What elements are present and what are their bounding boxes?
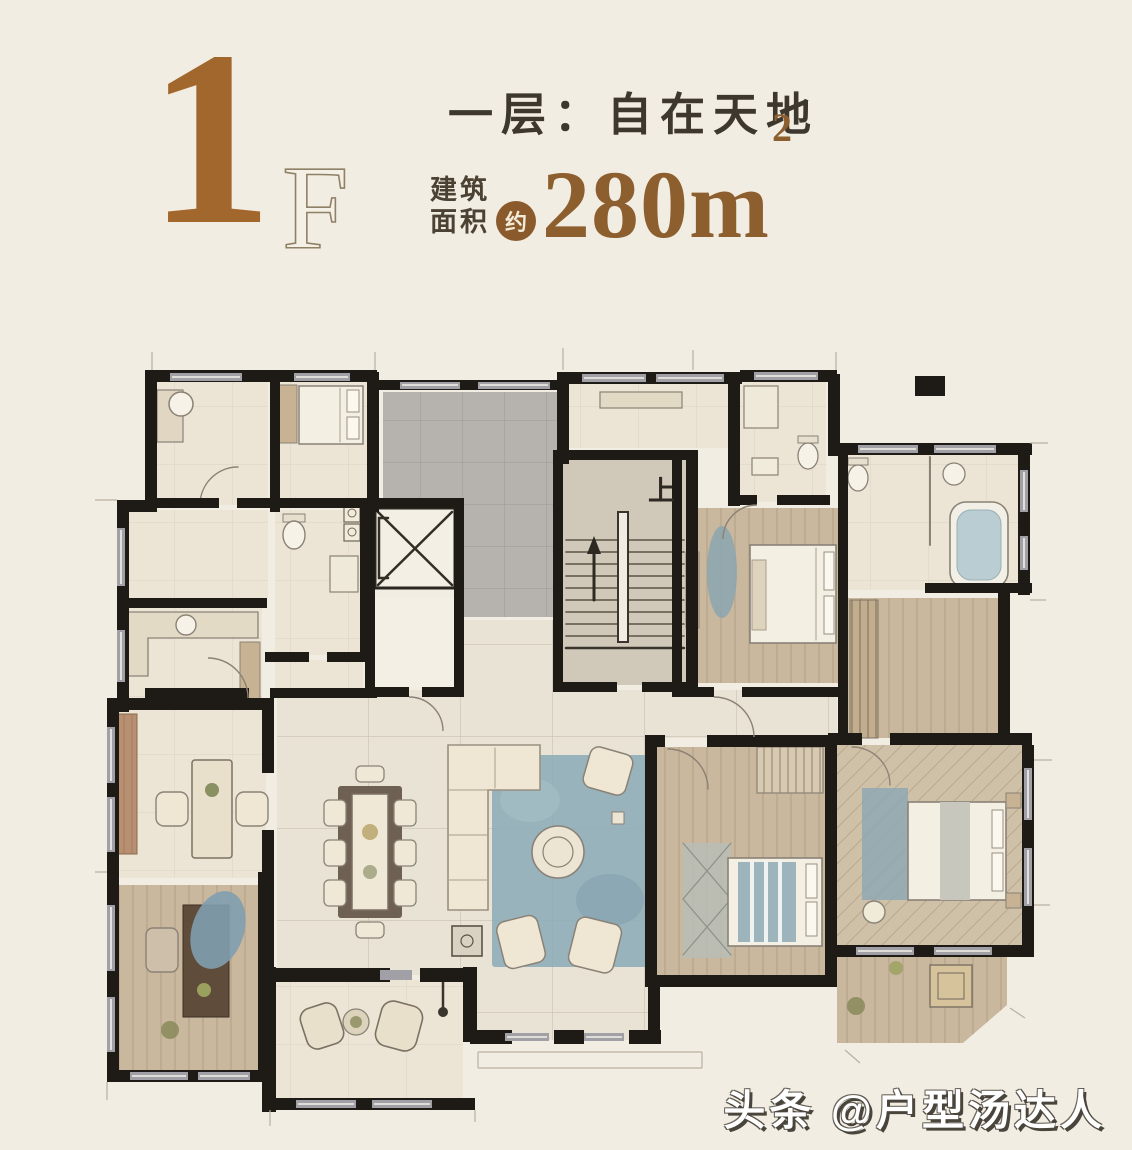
page-title: 一层：自在天地: [448, 78, 819, 143]
area-value: 280m2: [542, 166, 791, 245]
floor-number: 1: [148, 14, 273, 264]
chair-icon: [156, 792, 188, 826]
area-approx-badge: 约: [496, 201, 536, 241]
dryer-icon: [344, 524, 360, 541]
area-label-top: 建筑: [430, 175, 490, 207]
page: 上 1 F 一层：自在天地 建筑 面积 约 280m2 头条 @户型汤达人: [0, 0, 1132, 1150]
area-superscript: 2: [772, 105, 793, 150]
watermark: 头条 @户型汤达人: [723, 1077, 1106, 1138]
sink-icon: [752, 458, 778, 475]
rug: [862, 788, 908, 900]
plant-icon: [350, 1016, 362, 1028]
tv-stand-icon: [452, 926, 482, 956]
toilet-icon: [798, 443, 818, 469]
closet-icon: [850, 600, 878, 738]
table-icon: [930, 965, 972, 1007]
console-table-icon: [600, 392, 682, 408]
bench-icon: [356, 922, 384, 938]
sink-icon: [169, 392, 193, 416]
toilet-icon: [848, 465, 868, 491]
nightstand-icon: [1006, 893, 1021, 908]
area-label-bottom: 面积: [430, 207, 490, 239]
chair-icon: [146, 928, 178, 972]
living-room-furniture: [448, 745, 654, 975]
area-row: 建筑 面积 约 280m2: [430, 166, 791, 245]
chair-icon: [394, 880, 416, 906]
bench-icon: [356, 766, 384, 782]
plant-icon: [847, 997, 865, 1015]
bed-runner: [940, 802, 970, 900]
dining-table-icon: [352, 794, 388, 910]
sink-icon: [943, 463, 965, 485]
chair-icon: [236, 792, 268, 826]
floor-suffix-outline: F: [272, 148, 382, 263]
stairs-up-label: 上: [648, 476, 675, 506]
nightstand-icon: [1006, 793, 1021, 808]
plant-icon: [197, 983, 211, 997]
chair-icon: [324, 880, 346, 906]
area-label: 建筑 面积: [430, 175, 490, 245]
chair-icon: [394, 800, 416, 826]
shower-icon: [330, 556, 358, 592]
coffee-table-icon: [532, 826, 584, 878]
plant-icon: [205, 783, 219, 797]
maid-bed-icon: [277, 385, 363, 444]
pouf-icon: [863, 901, 885, 923]
floor-suffix: F: [282, 148, 349, 263]
rug: [707, 526, 737, 618]
shower-icon: [744, 386, 778, 428]
chair-icon: [324, 840, 346, 866]
elevator-icon: [375, 508, 455, 588]
kitchen-sink-icon: [176, 615, 196, 635]
rug: [683, 843, 731, 958]
desk-icon: [192, 760, 232, 858]
plant-icon: [889, 961, 903, 975]
side-table-icon: [612, 812, 624, 824]
elevator-lobby-floor: [372, 598, 454, 687]
plant-icon: [161, 1021, 179, 1039]
chair-icon: [394, 840, 416, 866]
toilet-icon: [283, 521, 305, 549]
area-number: 280m: [542, 151, 770, 258]
chair-icon: [324, 800, 346, 826]
